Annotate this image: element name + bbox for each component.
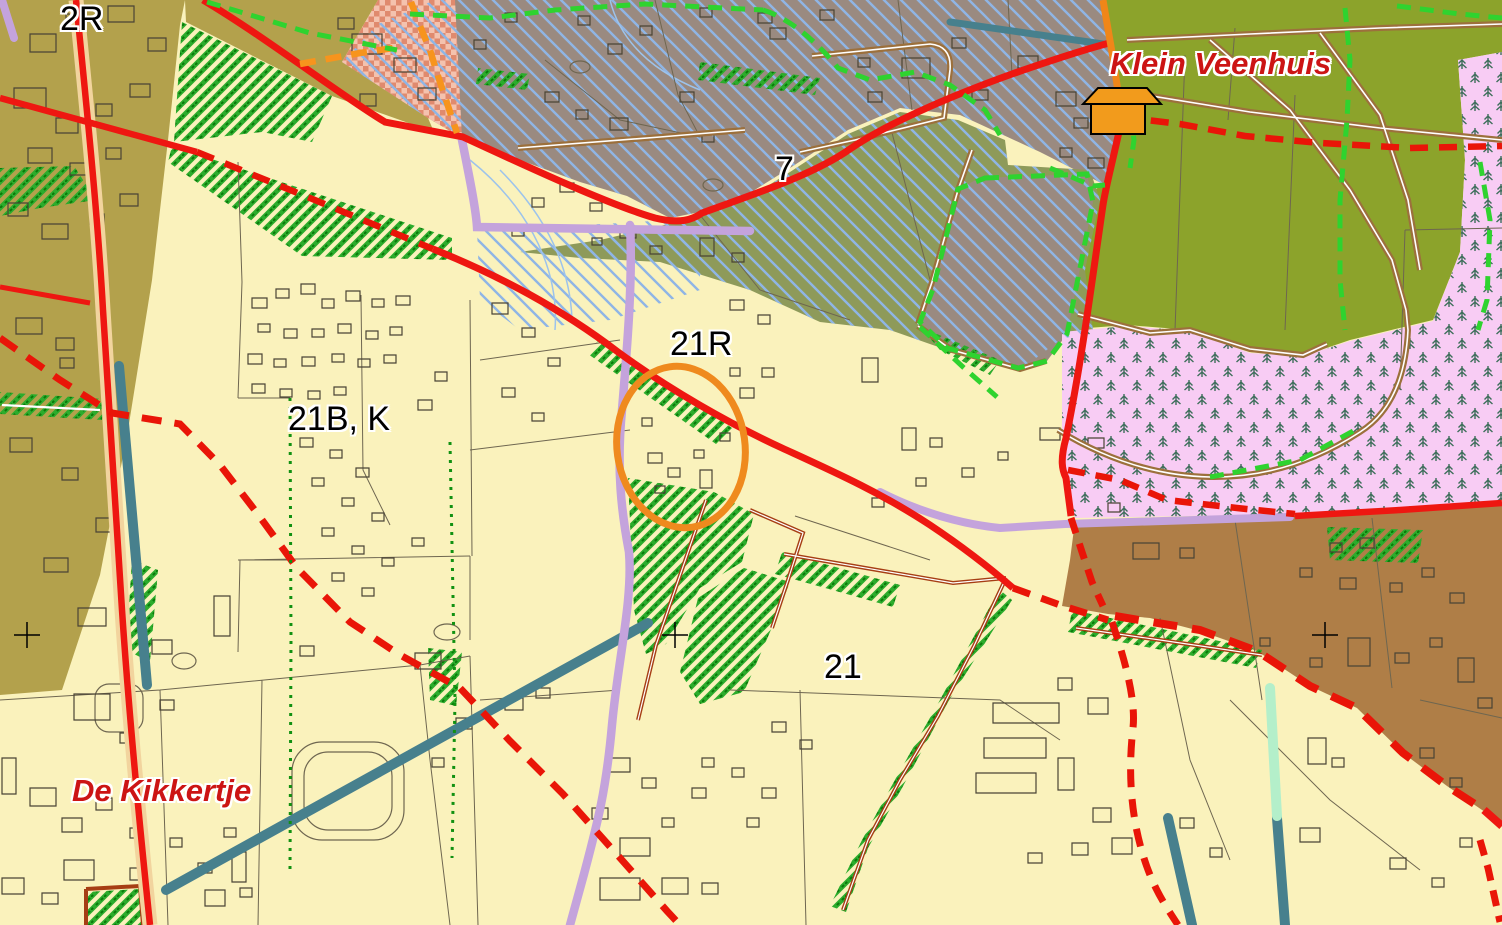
map-canvas[interactable]: 2R Klein Veenhuis 7 21R 21B, K 21 De Kik…	[0, 0, 1502, 925]
label-zone-21r: 21R	[670, 327, 732, 361]
label-zone-2r: 2R	[60, 2, 103, 36]
label-zone-21: 21	[824, 650, 862, 684]
label-place-klein-veenhuis: Klein Veenhuis	[1110, 48, 1331, 79]
label-zone-7: 7	[775, 152, 794, 186]
waterway-mint-line	[1270, 688, 1277, 816]
label-place-de-kikkertje: De Kikkertje	[72, 775, 251, 806]
label-zone-21bk: 21B, K	[288, 402, 390, 436]
